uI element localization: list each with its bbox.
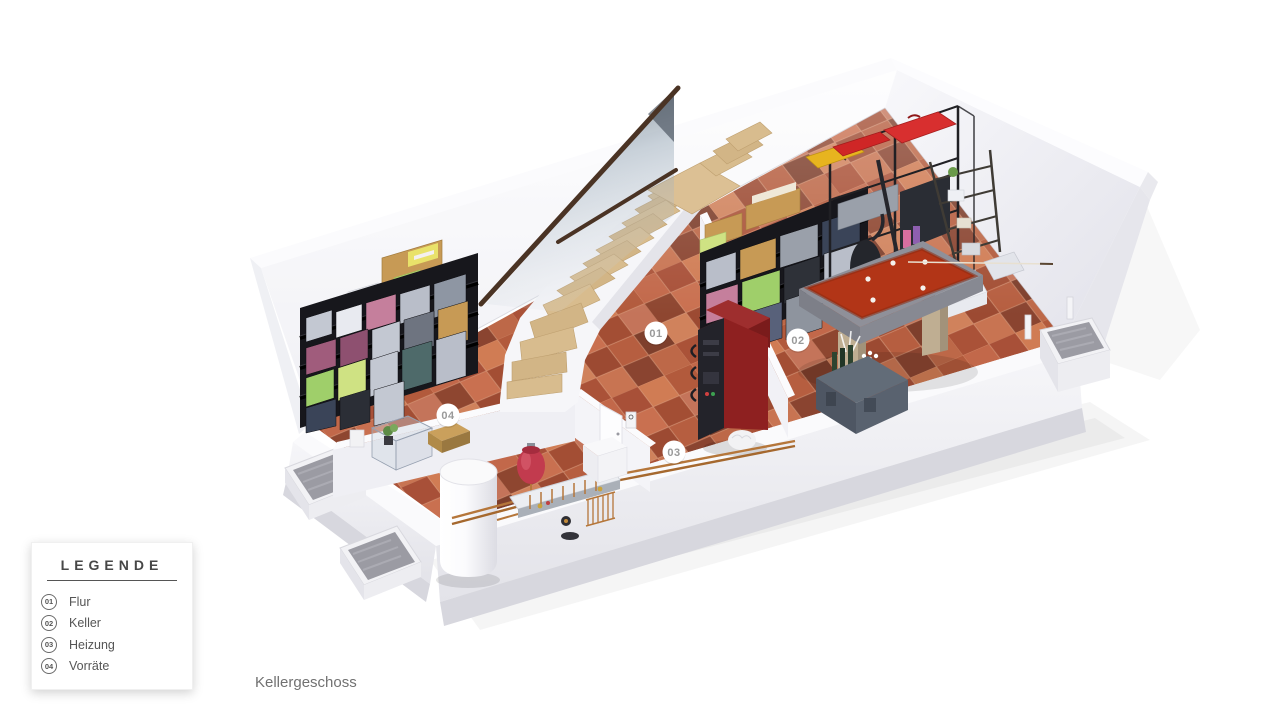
white-cabinet bbox=[583, 437, 627, 483]
marker-heizung: 03 bbox=[663, 441, 686, 466]
floor-drain bbox=[561, 532, 579, 540]
legend-panel: LEGENDE 01 Flur 02 Keller 03 Heizung 04 … bbox=[31, 542, 193, 690]
marker-keller: 02 bbox=[787, 329, 810, 354]
legend-item-heizung: 03 Heizung bbox=[41, 634, 192, 656]
legend-items: 01 Flur 02 Keller 03 Heizung 04 Vorräte bbox=[32, 591, 192, 677]
svg-text:03: 03 bbox=[667, 447, 680, 459]
legend-title: LEGENDE bbox=[32, 557, 192, 573]
door-handle bbox=[617, 433, 620, 436]
legend-label: Keller bbox=[69, 616, 101, 630]
legend-number-badge: 01 bbox=[41, 594, 57, 610]
plant bbox=[948, 167, 958, 177]
pellet-bag bbox=[728, 430, 756, 450]
legend-label: Vorräte bbox=[69, 659, 109, 673]
legend-item-flur: 01 Flur bbox=[41, 591, 192, 613]
detergent-bottle bbox=[903, 230, 911, 248]
marker-vorraete: 04 bbox=[437, 404, 460, 429]
legend-label: Flur bbox=[69, 595, 91, 609]
svg-text:04: 04 bbox=[441, 410, 455, 422]
utility-meter bbox=[626, 412, 636, 428]
legend-label: Heizung bbox=[69, 638, 115, 652]
legend-number-badge: 03 bbox=[41, 637, 57, 653]
floorplan-page: 01 02 03 04 LEGENDE 01 Flur 02 Keller bbox=[0, 0, 1280, 721]
svg-text:01: 01 bbox=[649, 328, 662, 340]
small-appliance bbox=[350, 430, 364, 447]
legend-number-badge: 04 bbox=[41, 658, 57, 674]
legend-item-vorraete: 04 Vorräte bbox=[41, 656, 192, 678]
marker-flur: 01 bbox=[645, 322, 668, 347]
legend-item-keller: 02 Keller bbox=[41, 613, 192, 635]
floor-caption: Kellergeschoss bbox=[255, 674, 357, 691]
legend-number-badge: 02 bbox=[41, 615, 57, 631]
legend-divider bbox=[47, 580, 177, 581]
svg-text:02: 02 bbox=[791, 335, 804, 347]
